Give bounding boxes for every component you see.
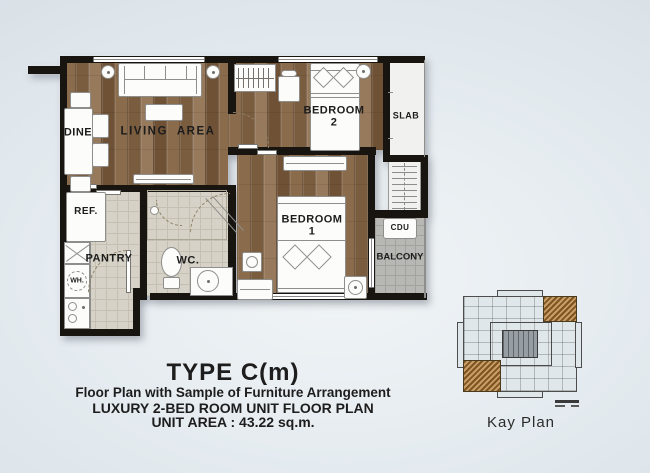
wall-pantry-bottom [60, 329, 140, 336]
bedroom1-dresser-line [286, 163, 344, 164]
side-table-left-dot [107, 71, 110, 74]
label-pantry: PANTRY [86, 254, 133, 265]
sofa-arm-left [124, 66, 125, 94]
keyplan-wing-right [575, 322, 582, 368]
bed1-headboard-line [277, 203, 346, 204]
bed1-blanket-line-1 [277, 240, 346, 241]
slab-mark-lower [388, 138, 393, 139]
wall-wc-left [140, 188, 147, 300]
keyplan-wing-top [497, 290, 543, 297]
window-living [93, 57, 205, 62]
slab-edge-right [424, 60, 425, 157]
keyplan-wing-bottom [497, 391, 543, 398]
bedroom2-fan-coil-dot [362, 70, 365, 73]
bedroom2-closet [234, 64, 276, 92]
label-wc: WC. [177, 256, 200, 267]
label-bedroom2-num: 2 [331, 118, 338, 129]
scale-mark-ticks [555, 405, 565, 407]
bedroom1-bed [277, 196, 346, 293]
label-living-area: LIVING AREA [121, 126, 216, 138]
plan-title: TYPE C(m) [23, 360, 443, 386]
label-slab: SLAB [393, 112, 420, 121]
label-bedroom1-num: 1 [309, 227, 316, 238]
slab-mark-upper [388, 92, 393, 93]
stove-knob [82, 306, 85, 309]
window-bedroom2 [278, 57, 378, 62]
toilet-tank [163, 277, 180, 289]
plan-description: LUXURY 2-BED ROOM UNIT FLOOR PLAN [23, 401, 443, 416]
dining-table [64, 108, 93, 175]
key-plan: Kay Plan [455, 286, 587, 436]
keyplan-core [502, 330, 538, 358]
dining-chair-right-2 [92, 143, 109, 167]
plan-subtitle: Floor Plan with Sample of Furniture Arra… [23, 386, 443, 401]
bed1-blanket-line-2 [277, 288, 346, 289]
stove-burner-2 [68, 314, 77, 323]
basin-drain [207, 280, 210, 283]
hall-sliding-door-b [257, 150, 277, 155]
sofa-cushion-1 [144, 66, 145, 79]
sofa-cushion-3 [186, 66, 187, 79]
sofa-seat-line [124, 79, 196, 80]
hanger-rod [404, 163, 406, 210]
stove-burner-1 [68, 302, 77, 311]
label-wh: WH. [70, 278, 84, 285]
bedroom1-console-line [240, 289, 270, 290]
dining-chair-bottom [70, 176, 91, 192]
stove [64, 298, 90, 329]
floor-plan-page: DINE LIVING AREA BEDROOM 2 SLAB REF. PAN… [0, 0, 650, 473]
balcony-sliding-door [369, 238, 374, 288]
wall-pantry-right [133, 288, 140, 336]
label-balcony: BALCONY [377, 252, 424, 262]
bed2-blanket-line-2 [310, 97, 360, 98]
fan-coil-dot [354, 286, 357, 289]
balcony-railing [424, 218, 426, 298]
label-bedroom2: BEDROOM [304, 106, 365, 117]
label-bedroom1: BEDROOM [282, 215, 343, 226]
sofa-cushion-2 [165, 66, 166, 79]
scale-mark [555, 400, 579, 403]
label-cdu: CDU [391, 224, 410, 232]
wall-wardrobe-right [421, 155, 428, 218]
keyplan-highlight-unit-topright [543, 296, 577, 322]
sofa [118, 63, 202, 97]
key-plan-label: Kay Plan [455, 414, 587, 431]
label-ref: REF. [74, 207, 98, 217]
scale-mark-ticks-2 [571, 405, 579, 407]
refrigerator [66, 192, 106, 242]
unit-area: UNIT AREA : 43.22 sq.m. [23, 415, 443, 430]
tv-console-line [136, 179, 191, 180]
dining-chair-top [70, 92, 91, 108]
bed2-headboard-line [310, 70, 360, 71]
slab-floor [388, 60, 425, 157]
closet-rod [236, 78, 274, 79]
wall-right-upper [383, 56, 390, 162]
window-bedroom1 [268, 294, 348, 299]
wall-balcony-top [371, 210, 428, 218]
coffee-table [145, 104, 183, 121]
side-table-right-dot [212, 71, 215, 74]
label-dine: DINE [64, 128, 92, 139]
wardrobe-right [388, 160, 421, 212]
keyplan-highlight-unit-bottomleft [463, 360, 501, 392]
dining-chair-right-1 [92, 114, 109, 138]
bedroom2-desk [278, 76, 300, 102]
bed2-blanket-line-1 [310, 93, 360, 94]
nightstand-lamp [246, 256, 258, 268]
caption-block: TYPE C(m) Floor Plan with Sample of Furn… [23, 360, 443, 430]
sofa-arm-right [196, 66, 197, 94]
